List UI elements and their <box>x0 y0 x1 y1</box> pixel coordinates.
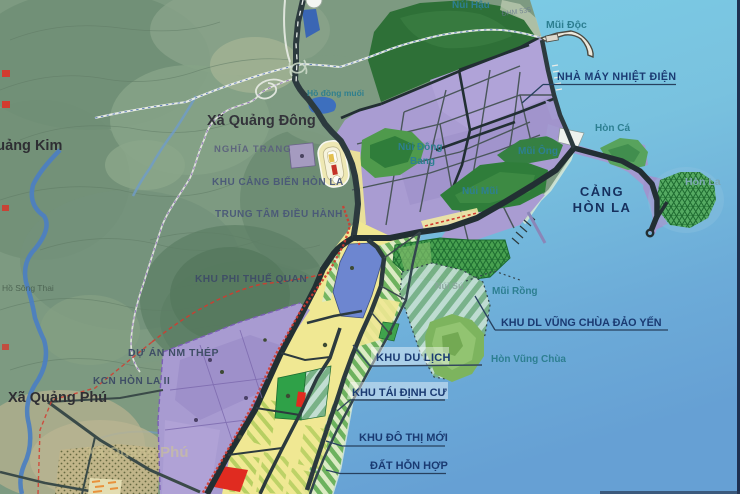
svg-text:Hồ đồng muối: Hồ đồng muối <box>307 88 364 98</box>
svg-text:Xã Quảng Đông: Xã Quảng Đông <box>207 113 316 129</box>
svg-text:Mũi Độc: Mũi Độc <box>546 19 587 31</box>
svg-text:Quảng Kim: Quảng Kim <box>0 138 62 154</box>
svg-text:Hòn Cá: Hòn Cá <box>595 123 630 134</box>
svg-text:Núi Sú: Núi Sú <box>435 281 464 291</box>
svg-text:DỰ ÁN NM THÉP: DỰ ÁN NM THÉP <box>128 346 219 359</box>
svg-text:Hòn La: Hòn La <box>685 176 721 188</box>
svg-text:Núi Mũi: Núi Mũi <box>462 186 498 197</box>
svg-text:Xã Quảng Phú: Xã Quảng Phú <box>8 390 107 406</box>
svg-text:Hòn Vũng Chùa: Hòn Vũng Chùa <box>491 354 566 365</box>
svg-text:KHU PHI THUẾ QUAN: KHU PHI THUẾ QUAN <box>195 272 307 285</box>
svg-text:ĐẤT HỖN HỢP: ĐẤT HỖN HỢP <box>370 459 448 472</box>
svg-text:Bang: Bang <box>410 156 435 167</box>
svg-text:NHÀ MÁY NHIỆT ĐIỆN: NHÀ MÁY NHIỆT ĐIỆN <box>557 70 676 83</box>
svg-text:KHU CẢNG BIỂN HÒN LA: KHU CẢNG BIỂN HÒN LA <box>212 175 344 188</box>
svg-text:HÒN LA: HÒN LA <box>573 200 632 215</box>
svg-text:KHU DL VŨNG CHÙA ĐẢO YẾN: KHU DL VŨNG CHÙA ĐẢO YẾN <box>501 316 662 329</box>
svg-text:Xã Quảng Phú: Xã Quảng Phú <box>86 444 189 461</box>
svg-text:KHU DU LỊCH: KHU DU LỊCH <box>376 352 451 364</box>
svg-text:Mũi Ông: Mũi Ông <box>518 144 558 157</box>
svg-text:Hồ Sông Thai: Hồ Sông Thai <box>2 283 54 293</box>
svg-text:KHU TÁI ĐỊNH CƯ: KHU TÁI ĐỊNH CƯ <box>352 386 448 399</box>
svg-text:NGHĨA TRANG: NGHĨA TRANG <box>214 144 292 155</box>
svg-text:Núi Đông: Núi Đông <box>398 142 442 153</box>
svg-text:KHU ĐÔ THỊ MỚI: KHU ĐÔ THỊ MỚI <box>359 431 448 444</box>
svg-text:Núi Hậu: Núi Hậu <box>452 0 490 11</box>
svg-text:TRUNG TÂM ĐIỀU HÀNH: TRUNG TÂM ĐIỀU HÀNH <box>215 207 343 220</box>
svg-text:CẢNG: CẢNG <box>580 184 624 199</box>
svg-text:Mũi Rồng: Mũi Rồng <box>492 285 538 297</box>
svg-text:KCN HÒN LA II: KCN HÒN LA II <box>93 374 170 387</box>
